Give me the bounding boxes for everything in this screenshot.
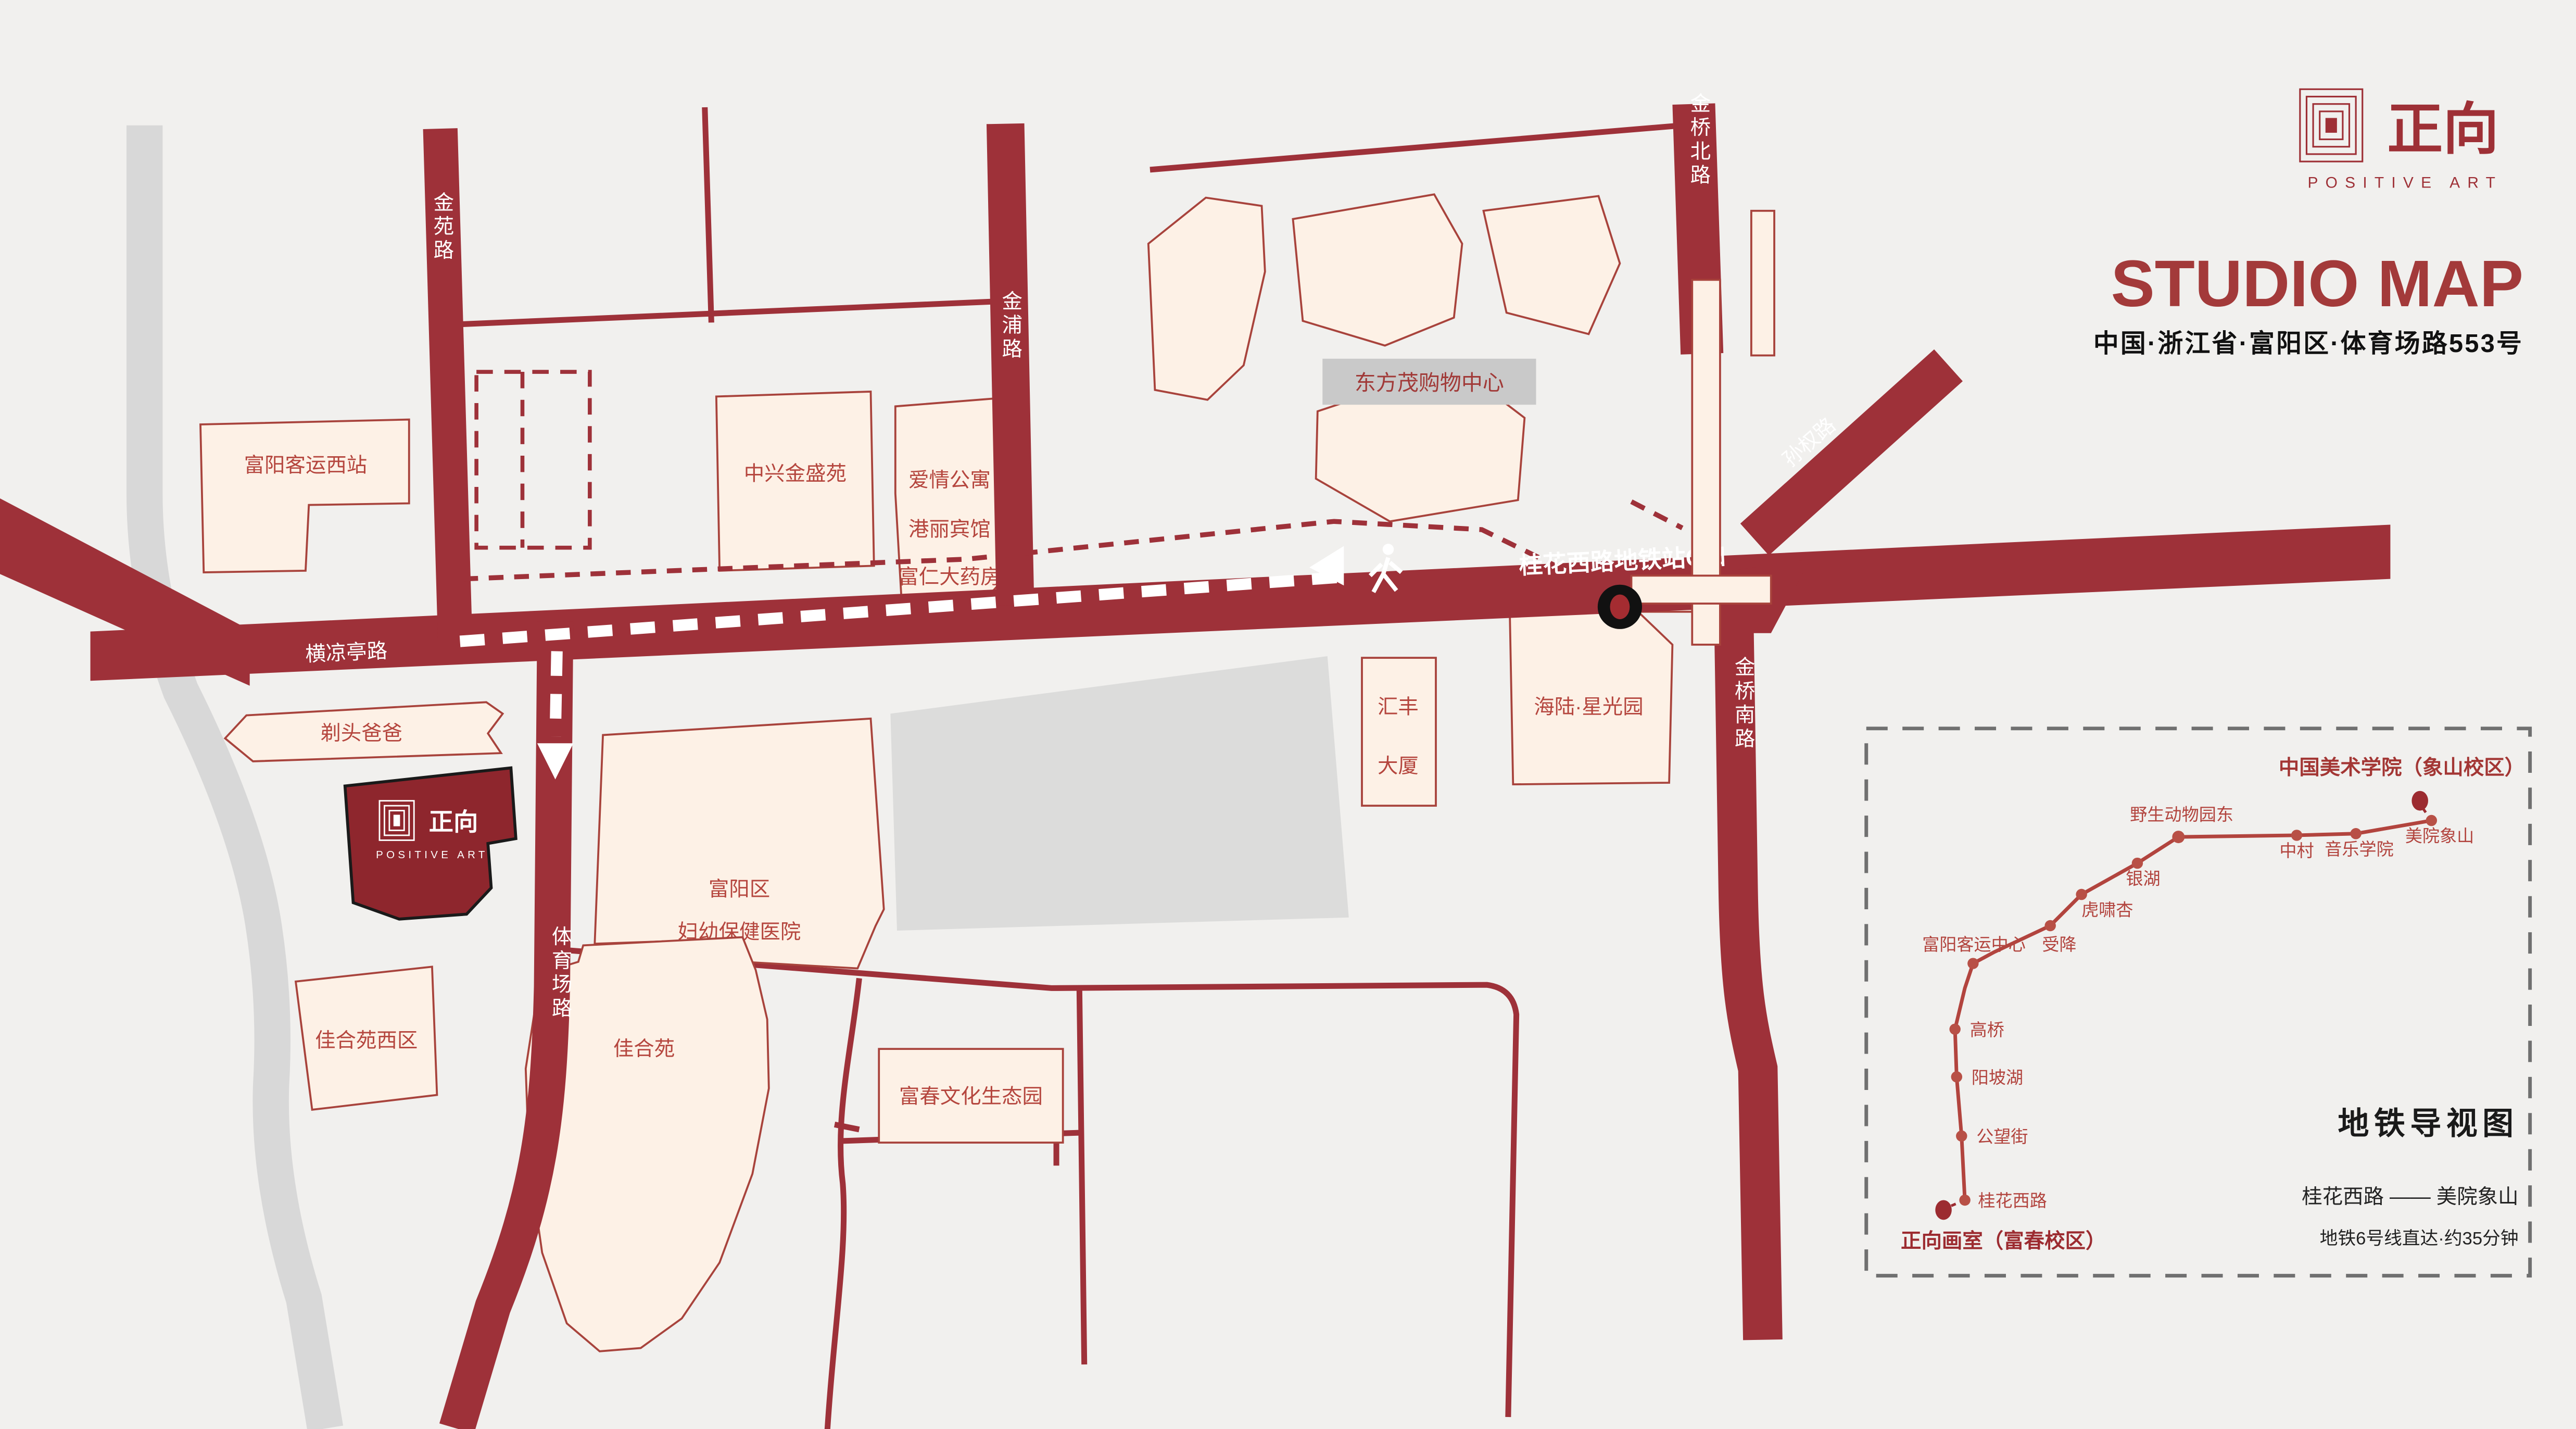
station-dot <box>2076 889 2087 900</box>
studio-map-poster: 富阳客运西站 中兴金盛苑 爱情公寓 港丽宾馆 富仁大药房 东方茂购物中心 汇丰 … <box>0 0 2576 1429</box>
station-label: 美院象山 <box>2405 827 2474 846</box>
station-dot <box>1949 1024 1960 1035</box>
road-jinpu <box>1005 124 1015 606</box>
road-label-jinyuan: 金苑路 <box>431 191 453 263</box>
building-mall-2 <box>1293 194 1462 345</box>
building-label: 富仁大药房 <box>898 566 1001 588</box>
station-dot <box>2350 828 2361 839</box>
minimap-route: 桂花西路 —— 美院象山 <box>2302 1185 2518 1208</box>
address-line: 中国·浙江省·富阳区·体育场路553号 <box>2093 330 2523 358</box>
station-label: 中村 <box>2279 842 2314 861</box>
building-label: 佳合苑西区 <box>315 1029 418 1052</box>
station-label: 富阳客运中心 <box>1922 935 2026 955</box>
road-label-jinqiao-south: 金桥南路 <box>1732 656 1754 751</box>
minimap-note: 地铁6号线直达·约35分钟 <box>2320 1229 2519 1249</box>
building-huifeng <box>1362 658 1436 806</box>
station-dot <box>2426 815 2437 826</box>
minimap-destination-label: 中国美术学院（象山校区） <box>2279 756 2525 779</box>
road-label-hengliangting: 横凉亭路 <box>305 640 388 666</box>
page-title: STUDIO MAP <box>2111 247 2523 320</box>
minimap-title: 地铁导视图 <box>2338 1106 2519 1141</box>
minimap-destination-dot <box>2411 791 2428 811</box>
station-label: 银湖 <box>2126 870 2160 889</box>
building-label: 大厦 <box>1378 755 1419 778</box>
station-label: 桂花西路 <box>1978 1192 2047 1211</box>
station-label: 阳坡湖 <box>1972 1068 2023 1087</box>
station-label: 虎啸杏 <box>2081 901 2133 920</box>
mall-label: 东方茂购物中心 <box>1355 371 1504 395</box>
station-dot <box>2172 831 2184 843</box>
studio-label-zh: 正向 <box>429 808 478 836</box>
station-dot <box>2044 920 2055 931</box>
station-label: 受降 <box>2042 935 2076 955</box>
station-dot <box>2132 858 2143 869</box>
building-label: 富春文化生态园 <box>899 1085 1043 1108</box>
road-label-jinqiao-north: 金桥北路 <box>1687 92 1710 187</box>
metro-exit-marker <box>1598 585 1642 629</box>
brand-name-zh: 正向 <box>2387 98 2499 160</box>
building-label: 港丽宾馆 <box>908 518 991 541</box>
minimap-origin-dot <box>1935 1200 1952 1220</box>
building-label: 中兴金盛苑 <box>744 462 847 485</box>
road-label-jinpu: 金浦路 <box>999 290 1022 362</box>
building-label: 富阳客运西站 <box>244 454 368 477</box>
building-label: 剃头爸爸 <box>320 722 402 745</box>
brand-name-en: POSITIVE ART <box>2307 174 2503 192</box>
building-label: 汇丰 <box>1378 695 1419 718</box>
station-label: 公望街 <box>1976 1127 2028 1147</box>
building-label: 海陆·星光园 <box>1534 695 1643 718</box>
building-label: 佳合苑 <box>613 1037 675 1060</box>
station-dot <box>1951 1071 1962 1082</box>
road-label-tiyuchang: 体育场路 <box>549 926 572 1021</box>
station-dot <box>1967 958 1978 969</box>
station-label: 野生动物园东 <box>2130 806 2233 825</box>
station-dot <box>2291 830 2302 841</box>
station-dot <box>1959 1195 1970 1206</box>
building-label: 富阳区 <box>709 878 770 901</box>
station-dot <box>1956 1131 1967 1142</box>
building-label: 爱情公寓 <box>908 469 991 492</box>
station-label: 音乐学院 <box>2325 840 2394 859</box>
minimap-origin-label: 正向画室（富春校区） <box>1901 1230 2106 1252</box>
studio-label-en: POSITIVE ART <box>376 849 488 861</box>
station-label: 高桥 <box>1970 1021 2004 1040</box>
